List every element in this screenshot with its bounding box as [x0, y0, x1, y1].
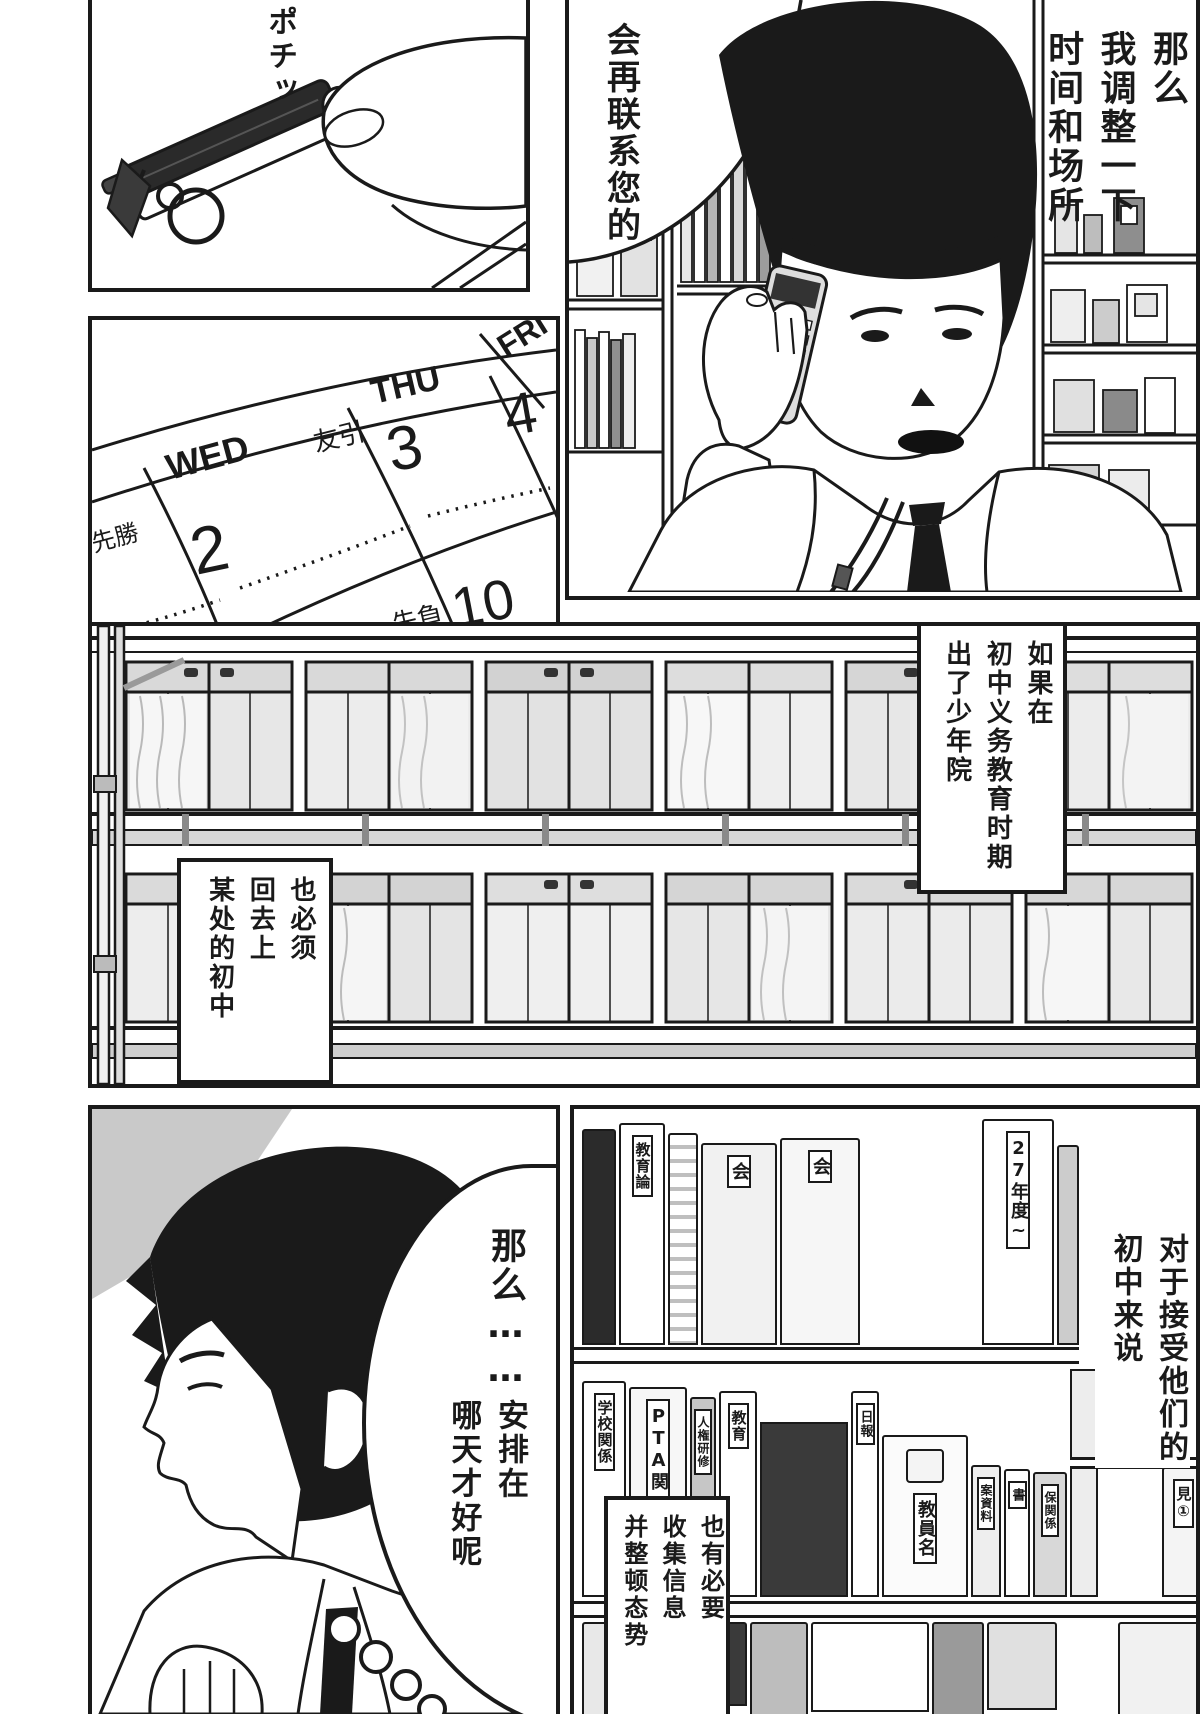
book-spine-label: 日報 — [856, 1403, 875, 1445]
speech-col: 我调整一下 — [1093, 30, 1135, 225]
book-spine-label: 教員名 — [913, 1493, 937, 1564]
caption-col: 初中义务教育时期 — [982, 640, 1013, 890]
caption-receiving-schools: 对于接受他们的 初中来说 — [1095, 1229, 1190, 1468]
calendar-date-3: 3 — [381, 411, 429, 486]
caption-return-school: 也必须 回去上 某处的初中 — [177, 858, 333, 1084]
panel-bookshelf: 教育論 会 会 27年度~ 学校関係 PTA関 人権研修 — [570, 1105, 1200, 1714]
book-spine: 教育論 — [619, 1123, 665, 1345]
thumb-hand — [320, 38, 526, 288]
book-spine-label: 会 — [808, 1150, 832, 1183]
book-spine-label: 案資料 — [977, 1477, 995, 1530]
book-spine — [750, 1622, 808, 1714]
book-spine: 案資料 — [971, 1465, 1001, 1597]
binder-ring-window — [906, 1449, 944, 1483]
doctor-hand — [703, 287, 807, 449]
manga-page: ポチッ WED 2 先勝 THU 3 — [0, 0, 1200, 1714]
caption-juvenile-hall: 如果在 初中义务教育时期 出了少年院 — [917, 626, 1067, 894]
caption-gather-info: 也有必要 收集信息 并整顿态势 — [604, 1496, 730, 1714]
book-spine-label: 27年度~ — [1006, 1131, 1030, 1249]
book-spine-label: PTA関 — [646, 1399, 670, 1498]
book-spine: 27年度~ — [982, 1119, 1054, 1345]
speech-col: 时间和场所 — [1041, 30, 1083, 225]
sfx-click: ポチッ — [257, 6, 301, 108]
calendar-dow-wed: WED — [161, 426, 253, 487]
book-spine — [987, 1622, 1057, 1710]
book-spine-label: 書 — [1008, 1481, 1027, 1509]
book-spine — [1118, 1622, 1200, 1714]
book-spine — [668, 1133, 698, 1345]
caption-col: 并整顿态势 — [620, 1514, 648, 1714]
calendar-dow-thu: THU — [367, 359, 444, 412]
book-spine-label: 教育論 — [632, 1135, 653, 1197]
shelf-post — [1070, 1369, 1098, 1597]
book-spine: 会 — [780, 1138, 860, 1345]
book-spine — [582, 1129, 616, 1345]
speech-col: 安排在 — [491, 1399, 528, 1569]
caption-col: 如果在 — [1022, 640, 1053, 890]
book-spine — [1057, 1145, 1079, 1345]
flip-phone-hand-drawing — [92, 0, 526, 288]
speech-col: 那么 — [1146, 30, 1188, 225]
book-spine-label: 見① — [1173, 1479, 1194, 1528]
bookshelf-top-row: 教育論 会 会 27年度~ — [574, 1113, 1079, 1345]
book-spine-label: 学校関係 — [594, 1393, 615, 1471]
caption-col: 也必须 — [285, 876, 316, 1080]
calendar-rokuyo-senshо̄: 先勝 — [92, 519, 142, 558]
calendar-rokuyo-tomobiki: 友引 — [310, 416, 368, 458]
speech-will-contact: 会再联系您的 — [599, 22, 642, 244]
book-spine — [811, 1622, 929, 1712]
book-spine-label: 保関係 — [1041, 1484, 1059, 1537]
speech-adjust-time-place: 那么 我调整一下 时间和场所 — [1031, 30, 1188, 225]
book-spine: 見① — [1162, 1467, 1200, 1597]
book-spine-label: 人権研修 — [694, 1409, 712, 1475]
caption-col: 出了少年院 — [941, 640, 972, 890]
shelf-board — [574, 1347, 1079, 1364]
calendar-date-2: 2 — [184, 509, 235, 589]
speech-well-then: 那么…… — [483, 1227, 528, 1393]
book-spine: 保関係 — [1033, 1472, 1067, 1597]
doctor-tie — [909, 502, 945, 526]
book-spine: 会 — [701, 1143, 777, 1345]
panel-doctor-call: 那么 我调整一下 时间和场所 会再联系您的 — [565, 0, 1200, 600]
book-spine-label: 会 — [727, 1155, 751, 1188]
doctor-coat — [629, 467, 1181, 592]
caption-col: 收集信息 — [658, 1514, 686, 1714]
caption-col: 回去上 — [245, 876, 276, 1080]
book-spine — [932, 1622, 984, 1714]
speech-col: 哪天才好呢 — [445, 1399, 482, 1569]
caption-col: 也有必要 — [696, 1514, 724, 1714]
panel-phone-hand: ポチッ — [88, 0, 530, 292]
caption-col: 对于接受他们的 — [1153, 1233, 1188, 1464]
book-spine: 教員名 — [882, 1435, 968, 1597]
book-spine — [760, 1422, 848, 1597]
book-spine: 日報 — [851, 1391, 879, 1597]
panel-calendar: WED 2 先勝 THU 3 友引 FRI 4 先負 10 — [88, 316, 560, 646]
book-spine: 書 — [1004, 1469, 1030, 1597]
calendar-drawing: WED 2 先勝 THU 3 友引 FRI 4 先負 10 — [92, 320, 556, 642]
calendar-date-4: 4 — [499, 379, 542, 449]
panel-thinking-man: 那么…… 安排在 哪天才好呢 — [88, 1105, 560, 1714]
book-spine-label: 教育 — [728, 1403, 749, 1449]
caption-col: 某处的初中 — [204, 876, 235, 1080]
speech-which-day: 安排在 哪天才好呢 — [435, 1399, 528, 1569]
panel-school-building: 如果在 初中义务教育时期 出了少年院 也必须 回去上 某处的初中 — [88, 622, 1200, 1088]
caption-col: 初中来说 — [1107, 1233, 1142, 1464]
